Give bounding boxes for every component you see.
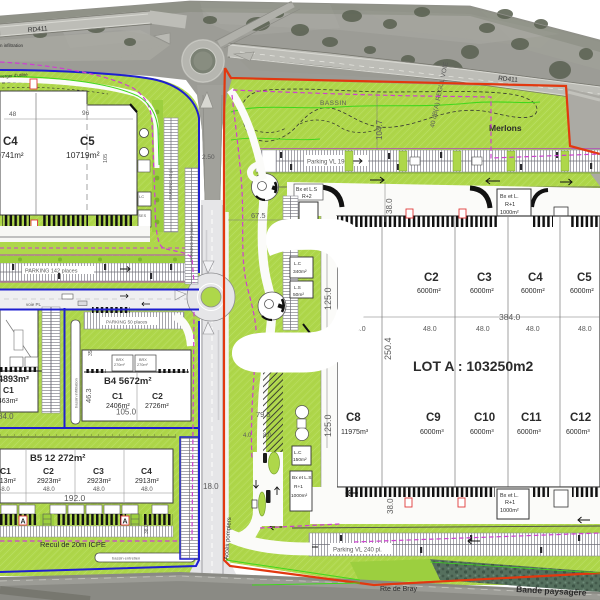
- svg-text:38.0: 38.0: [386, 498, 395, 514]
- svg-text:SES: SES: [139, 214, 147, 218]
- svg-text:250.4: 250.4: [383, 337, 393, 360]
- svg-text:Bx et L.: Bx et L.: [500, 493, 519, 499]
- svg-text:1000m²: 1000m²: [500, 210, 519, 216]
- svg-text:bassin infiltration: bassin infiltration: [74, 378, 79, 408]
- svg-text:48.0: 48.0: [141, 487, 153, 493]
- svg-text:C3: C3: [93, 466, 104, 476]
- svg-text:voie PL: voie PL: [26, 302, 42, 307]
- svg-text:2913m²: 2913m²: [135, 478, 159, 485]
- svg-text:18.0: 18.0: [203, 482, 219, 491]
- svg-text:C1: C1: [112, 391, 123, 401]
- svg-text:2923m²: 2923m²: [87, 478, 111, 485]
- svg-text:L.C: L.C: [294, 450, 302, 456]
- svg-text:10741m²: 10741m²: [0, 151, 24, 160]
- svg-text:Parking VL 240 pl.: Parking VL 240 pl.: [333, 548, 382, 554]
- svg-text:BASSIN: BASSIN: [320, 100, 347, 107]
- svg-text:2463m²: 2463m²: [0, 398, 18, 405]
- svg-text:LC: LC: [139, 194, 144, 199]
- svg-text:C2: C2: [43, 466, 54, 476]
- svg-text:50m²: 50m²: [293, 292, 304, 298]
- svg-text:1000m²: 1000m²: [291, 493, 308, 499]
- svg-text:8.0: 8.0: [263, 433, 272, 439]
- svg-text:105: 105: [103, 154, 109, 163]
- svg-text:270m²: 270m²: [137, 363, 148, 367]
- svg-text:11975m³: 11975m³: [341, 429, 369, 436]
- svg-text:A: A: [21, 519, 26, 526]
- svg-text:C4: C4: [528, 272, 543, 284]
- svg-text:48.0: 48.0: [0, 487, 10, 493]
- svg-text:6000m³: 6000m³: [420, 429, 444, 436]
- svg-text:PARKING 142 places: PARKING 142 places: [25, 269, 78, 275]
- svg-text:270m²: 270m²: [114, 363, 125, 367]
- svg-text:C2: C2: [152, 391, 163, 401]
- svg-text:R+1: R+1: [505, 202, 515, 208]
- svg-text:Merlons: Merlons: [489, 123, 522, 133]
- svg-text:6000m²: 6000m²: [570, 288, 594, 295]
- svg-text:96: 96: [82, 110, 90, 117]
- svg-text:150m²: 150m²: [293, 457, 307, 463]
- svg-text:C1: C1: [0, 466, 11, 476]
- svg-text:C4: C4: [141, 466, 152, 476]
- svg-text:2913m²: 2913m²: [0, 478, 16, 485]
- svg-text:46.3: 46.3: [84, 388, 93, 403]
- svg-text:C1: C1: [3, 385, 14, 395]
- svg-text:6000m³: 6000m³: [517, 429, 541, 436]
- svg-text:BRX: BRX: [139, 358, 147, 362]
- svg-text:C8: C8: [346, 412, 361, 424]
- svg-text:38.0: 38.0: [385, 198, 394, 214]
- svg-text:PARKING 40 pl.: PARKING 40 pl.: [168, 168, 173, 200]
- svg-text:R+2: R+2: [302, 194, 312, 200]
- svg-text:C3: C3: [477, 272, 492, 284]
- svg-text:48.0: 48.0: [423, 326, 437, 333]
- svg-text:67.5: 67.5: [251, 211, 266, 220]
- svg-text:BRX: BRX: [116, 358, 124, 362]
- svg-text:PARKING 50 places: PARKING 50 places: [106, 320, 148, 325]
- svg-text:6000m²: 6000m²: [417, 288, 441, 295]
- svg-text:C12: C12: [570, 412, 591, 424]
- svg-text:125.0: 125.0: [323, 287, 333, 310]
- svg-text:R+1: R+1: [505, 500, 515, 506]
- svg-text:B4 5672m²: B4 5672m²: [104, 376, 152, 387]
- svg-text:2726m²: 2726m²: [145, 403, 169, 410]
- svg-text:84.0: 84.0: [0, 412, 14, 421]
- svg-text:C11: C11: [521, 412, 542, 424]
- svg-text:n infiltration: n infiltration: [0, 43, 24, 48]
- svg-text:48.0: 48.0: [43, 487, 55, 493]
- svg-text:384.0: 384.0: [499, 312, 521, 322]
- svg-text:48.0: 48.0: [578, 326, 592, 333]
- svg-text:6000m³: 6000m³: [566, 429, 590, 436]
- svg-text:B5 12 272m²: B5 12 272m²: [30, 453, 85, 464]
- svg-text:340m²: 340m²: [293, 269, 307, 275]
- svg-text:4.0: 4.0: [243, 433, 252, 439]
- svg-text:48.0: 48.0: [476, 326, 490, 333]
- svg-text:48.0: 48.0: [93, 487, 105, 493]
- svg-text:6000m²: 6000m²: [470, 288, 494, 295]
- svg-text:1000m²: 1000m²: [500, 508, 519, 514]
- svg-text:C5: C5: [577, 272, 592, 284]
- svg-text:C4: C4: [3, 136, 18, 148]
- svg-text:L.S: L.S: [294, 285, 301, 290]
- svg-text:48.0: 48.0: [526, 326, 540, 333]
- svg-text:6000m³: 6000m³: [470, 429, 494, 436]
- svg-text:105.0: 105.0: [116, 408, 137, 417]
- svg-text:L.C: L.C: [294, 261, 302, 266]
- svg-text:125.0: 125.0: [323, 414, 333, 437]
- svg-text:Rte de Bray: Rte de Bray: [380, 586, 417, 593]
- svg-text:A: A: [123, 519, 128, 526]
- svg-text:Bx et L.S: Bx et L.S: [296, 187, 318, 193]
- svg-text:10719m²: 10719m²: [66, 150, 100, 160]
- svg-text:Bx et L.S: Bx et L.S: [292, 475, 311, 481]
- svg-text:C10: C10: [474, 412, 495, 424]
- svg-text:35: 35: [88, 350, 94, 356]
- svg-text:Recul de 20m ICPE: Recul de 20m ICPE: [40, 540, 106, 549]
- svg-text:R+1: R+1: [294, 484, 303, 490]
- svg-text:bassin entretien: bassin entretien: [112, 556, 140, 561]
- svg-text:48: 48: [9, 111, 17, 118]
- svg-text:6000m²: 6000m²: [521, 288, 545, 295]
- svg-text:2923m²: 2923m²: [37, 478, 61, 485]
- svg-text:C9: C9: [426, 412, 441, 424]
- svg-text:C2: C2: [424, 272, 439, 284]
- svg-text:192.0: 192.0: [64, 493, 86, 503]
- svg-text:79.5: 79.5: [256, 410, 271, 419]
- svg-text:2.50: 2.50: [202, 154, 215, 161]
- svg-text:Bx et L.: Bx et L.: [500, 194, 519, 200]
- svg-text:4893m²: 4893m²: [0, 374, 29, 384]
- svg-text:C5: C5: [80, 136, 95, 148]
- svg-text:104.7: 104.7: [375, 119, 384, 140]
- svg-text:LOT A : 103250m2: LOT A : 103250m2: [413, 358, 534, 374]
- svg-text:38.0: 38.0: [144, 524, 150, 534]
